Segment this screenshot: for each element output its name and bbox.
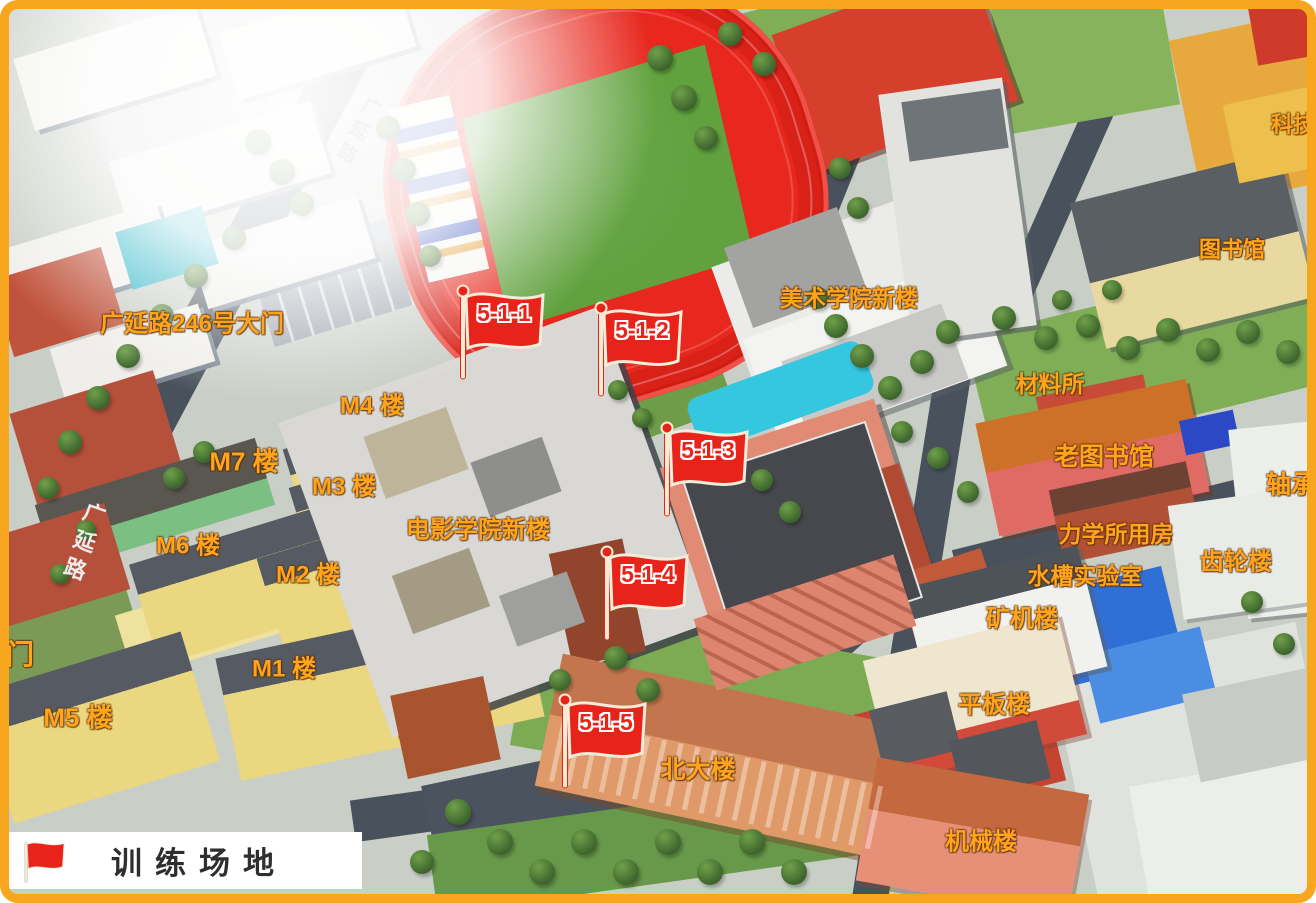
flag-graphic [659, 421, 751, 519]
tree [549, 669, 571, 691]
building-label-flat-building: 平板楼 [958, 685, 1030, 720]
tree [410, 850, 434, 874]
tree [419, 245, 441, 267]
building-label-m5-building: M5 楼 [43, 698, 112, 735]
building-label-m7-building: M7 楼 [209, 442, 278, 479]
building-label-mining-building: 矿机楼 [986, 599, 1058, 634]
flag-label: 5-1-2 [603, 317, 681, 344]
legend: 训练场地 [9, 832, 362, 889]
flag-5-1-1: 5-1-1 [455, 284, 547, 382]
tree [392, 158, 416, 182]
tree [1273, 633, 1295, 655]
tree [116, 344, 140, 368]
building-label-north-building: 北大楼 [660, 750, 735, 786]
tree [1102, 280, 1122, 300]
flag-graphic [593, 301, 685, 399]
tree [290, 192, 314, 216]
tree [694, 126, 718, 150]
tree [376, 116, 400, 140]
tree [571, 829, 597, 855]
flag-label: 5-1-5 [567, 709, 645, 736]
tree [1076, 314, 1100, 338]
red-corner-block [1247, 0, 1316, 66]
flag-5-1-5: 5-1-5 [557, 693, 649, 791]
flag-label: 5-1-4 [609, 561, 687, 588]
tree [655, 829, 681, 855]
city-block [13, 4, 217, 131]
tree [406, 202, 430, 226]
building-label-m1-building: M1 楼 [252, 649, 316, 684]
building-label-bearing: 轴承 [1266, 465, 1316, 501]
tree [752, 52, 776, 76]
tree [613, 859, 639, 885]
tree [957, 481, 979, 503]
tree [37, 477, 59, 499]
tree [739, 829, 765, 855]
tree [1241, 591, 1263, 613]
tree [751, 469, 773, 491]
tree [647, 45, 673, 71]
tree [58, 430, 82, 454]
building-label-art-academy: 美术学院新楼 [780, 279, 918, 313]
tree [1236, 320, 1260, 344]
tree [222, 226, 246, 250]
building-label-gate-246: 广延路246号大门 [100, 304, 284, 339]
tree [910, 350, 934, 374]
building-label-m2-building: M2 楼 [276, 555, 340, 590]
flag-graphic [557, 693, 649, 791]
tree [632, 408, 652, 428]
campus-map: 广延路246号大门M4 楼M7 楼M3 楼M6 楼M2 楼电影学院新楼M1 楼门… [0, 0, 1316, 903]
flag-5-1-3: 5-1-3 [659, 421, 751, 519]
tree [604, 646, 628, 670]
tree [697, 859, 723, 885]
tree [1276, 340, 1300, 364]
tree [671, 85, 697, 111]
tree [269, 159, 295, 185]
map-frame: 广延路246号大门M4 楼M7 楼M3 楼M6 楼M2 楼电影学院新楼M1 楼门… [0, 0, 1316, 903]
tree [878, 376, 902, 400]
tree [245, 129, 271, 155]
tree [445, 799, 471, 825]
building-label-keji-building: 科技 [1271, 107, 1315, 139]
building-label-m3-building: M3 楼 [312, 467, 376, 502]
tree [163, 467, 185, 489]
building-label-west-gate: 门 [6, 633, 34, 673]
tree [718, 22, 742, 46]
tree [779, 501, 801, 523]
tree [487, 829, 513, 855]
tree [824, 314, 848, 338]
flag-graphic [455, 284, 547, 382]
building-label-materials-inst: 材料所 [1016, 365, 1085, 399]
flag-graphic [599, 545, 691, 643]
flag-5-1-4: 5-1-4 [599, 545, 691, 643]
building-label-old-library: 老图书馆 [1054, 437, 1154, 473]
brick-wing [390, 676, 501, 779]
tree [847, 197, 869, 219]
tree [86, 386, 110, 410]
building-label-m4-building: M4 楼 [340, 386, 404, 421]
tree [927, 447, 949, 469]
tree [1196, 338, 1220, 362]
red-flag-icon [21, 838, 67, 884]
building-label-m6-building: M6 楼 [156, 526, 220, 561]
building-label-machinery-bldg: 机械楼 [945, 822, 1017, 857]
legend-label: 训练场地 [111, 838, 287, 883]
flag-label: 5-1-3 [669, 437, 747, 464]
flag-5-1-2: 5-1-2 [593, 301, 685, 399]
tree [781, 859, 807, 885]
tree [529, 859, 555, 885]
building-label-mechanics-rooms: 力学所用房 [1059, 515, 1174, 549]
building-label-library: 图书馆 [1199, 232, 1265, 264]
building-label-sink-lab: 水槽实验室 [1028, 557, 1143, 591]
tree [850, 344, 874, 368]
tree [936, 320, 960, 344]
tree [1156, 318, 1180, 342]
tree [184, 264, 208, 288]
tree [992, 306, 1016, 330]
grass [990, 0, 1180, 134]
flag-label: 5-1-1 [465, 300, 543, 327]
tree [891, 421, 913, 443]
tree [1034, 326, 1058, 350]
tree [1116, 336, 1140, 360]
tree [829, 157, 851, 179]
building-label-film-academy: 电影学院新楼 [406, 510, 550, 545]
tree [1052, 290, 1072, 310]
building-label-gear-building: 齿轮楼 [1200, 542, 1272, 577]
